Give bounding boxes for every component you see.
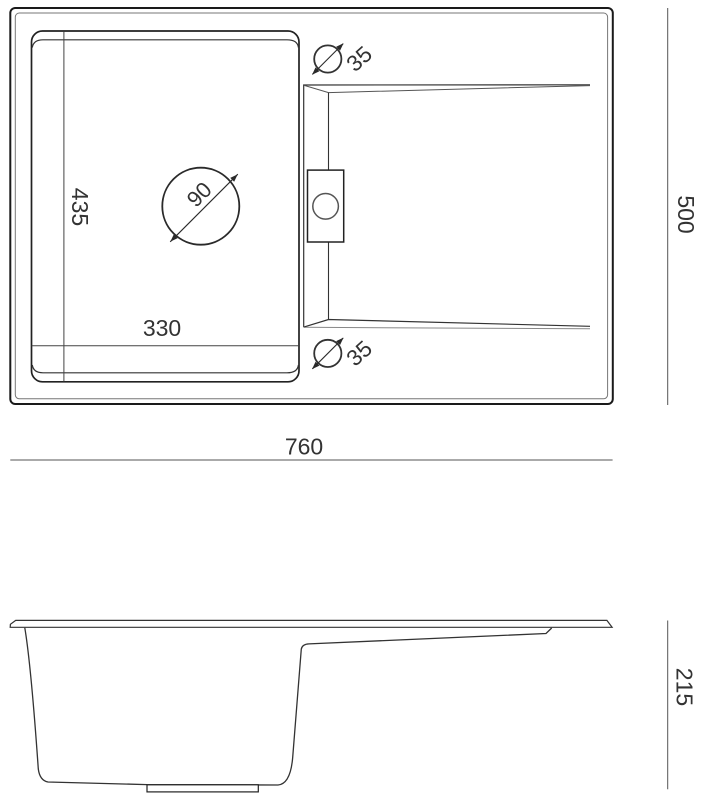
svg-text:760: 760 <box>285 434 323 460</box>
svg-text:435: 435 <box>67 188 93 226</box>
svg-text:500: 500 <box>673 195 699 233</box>
svg-text:330: 330 <box>143 315 181 341</box>
svg-text:215: 215 <box>671 668 697 706</box>
